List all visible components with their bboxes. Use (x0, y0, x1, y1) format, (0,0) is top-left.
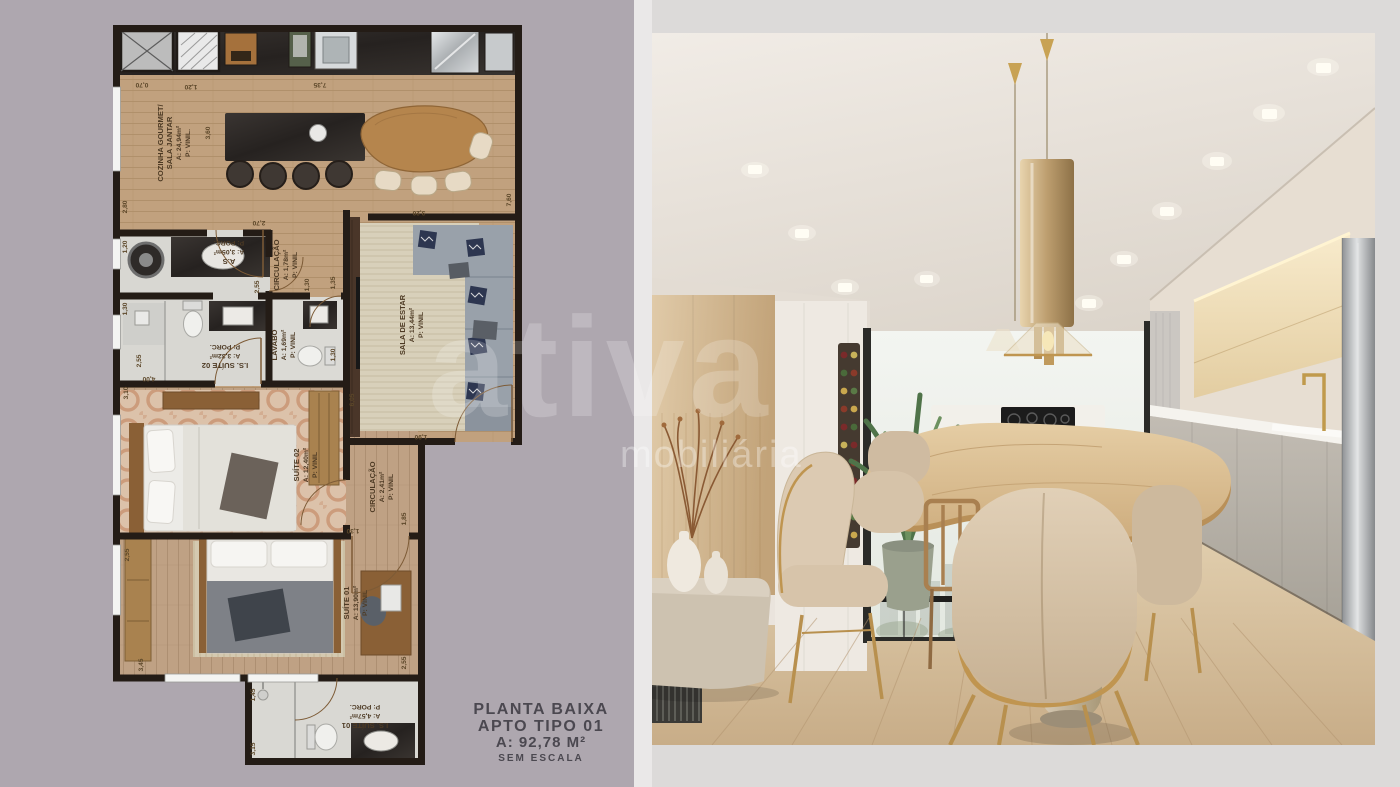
room-area-cozinha: A: 24,94m² (176, 125, 183, 160)
dim: 1,85 (401, 512, 408, 525)
dim: 1,30 (122, 302, 129, 315)
cylinder-pendant (1020, 159, 1074, 327)
room-label-is1: I.S. SUÍTE 01 (341, 721, 388, 730)
dim: 1,20 (184, 83, 197, 90)
dim: 2,80 (122, 200, 129, 213)
room-label-as: A.S (223, 257, 236, 266)
title-block: PLANTA BAIXA APTO TIPO 01 A: 92,78 M² SE… (441, 701, 641, 765)
room-label-cozinha2: SALA JANTAR (165, 116, 174, 169)
plan-scale-note: SEM ESCALA (441, 752, 641, 765)
room-area-suite2: A: 12,40m² (303, 447, 310, 482)
plan-title-line2: APTO TIPO 01 (441, 718, 641, 735)
room-area-suite1: A: 13,90m² (353, 585, 360, 620)
room-floor-lavabo: P: VINIL (290, 332, 297, 358)
dim: 1,35 (330, 276, 337, 289)
dim: 2,55 (254, 280, 261, 293)
room-floor-cozinha: P: VINIL. (185, 129, 192, 157)
room-label-circ2: CIRCULAÇÃO (368, 461, 377, 512)
laundry-room (129, 237, 270, 277)
room-label-is2: I.S. SUÍTE 02 (202, 361, 248, 370)
interior-render (652, 33, 1375, 745)
dim: 0,70 (135, 81, 148, 88)
room-label-cozinha: COZINHA GOURMET/ (156, 103, 165, 181)
dim: 1,20 (122, 240, 129, 253)
room-area-is1: A: 4,57m² (349, 712, 380, 719)
room-label-circ1: CIRCULAÇÃO (272, 239, 281, 290)
interior-photo (652, 33, 1375, 745)
room-floor-suite2: P: VINIL (312, 452, 319, 478)
room-floor-sala: P: VINIL (418, 312, 425, 338)
room-floor-is1: P: PORC. (350, 703, 380, 710)
marketing-board: COZINHA GOURMET/ SALA JANTAR A: 24,94m² … (0, 0, 1400, 787)
dim: 3,15 (250, 742, 257, 755)
dim: 2,70 (252, 219, 265, 226)
dim: 3,60 (205, 126, 212, 139)
dim: 2,55 (401, 656, 408, 669)
room-area-lavabo: A: 1,69m² (281, 329, 288, 360)
dim: 3,10 (123, 386, 130, 399)
dim: 7,35 (313, 81, 326, 88)
dim: 3,20 (412, 209, 425, 216)
dim: 1,30 (346, 527, 359, 534)
dim: 1,30 (304, 278, 311, 291)
plan-title-line1: PLANTA BAIXA (441, 701, 641, 718)
room-floor-is2: P: PORC. (210, 343, 240, 350)
dim: 1,45 (250, 688, 257, 701)
dim: 2,55 (136, 354, 143, 367)
room-floor-circ1: P: VINIL (292, 252, 299, 278)
room-floor-circ2: P: VINIL (388, 474, 395, 500)
room-area-circ2: A: 2,41m² (379, 471, 386, 502)
living-room (349, 217, 513, 437)
dim: 4,00 (142, 375, 155, 382)
room-label-lavabo: LAVABO (270, 329, 279, 360)
room-label-suite2: SUÍTE 02 (292, 449, 301, 482)
room-label-sala: SALA DE ESTAR (398, 294, 407, 355)
dim: 7,60 (506, 193, 513, 206)
dim: 1,90 (414, 433, 427, 440)
room-area-as: A: 3,05m² (213, 248, 244, 255)
dim: 2,55 (124, 548, 131, 561)
dim: 6,05 (349, 393, 356, 406)
room-label-suite1: SUÍTE 01 (342, 586, 351, 620)
room-area-circ1: A: 1,78m² (283, 249, 290, 280)
room-area-sala: A: 13,44m² (409, 307, 416, 342)
room-floor-as: P: PORC. (214, 239, 244, 246)
background-divider (634, 0, 652, 787)
dim: 1,30 (330, 348, 337, 361)
room-floor-suite1: P: VINIL (362, 590, 369, 616)
room-area-is2: A: 3,32m² (209, 352, 240, 359)
floor-plan: COZINHA GOURMET/ SALA JANTAR A: 24,94m² … (113, 25, 522, 768)
dim: 3,45 (138, 658, 145, 671)
plan-area-total: A: 92,78 M² (441, 735, 641, 751)
